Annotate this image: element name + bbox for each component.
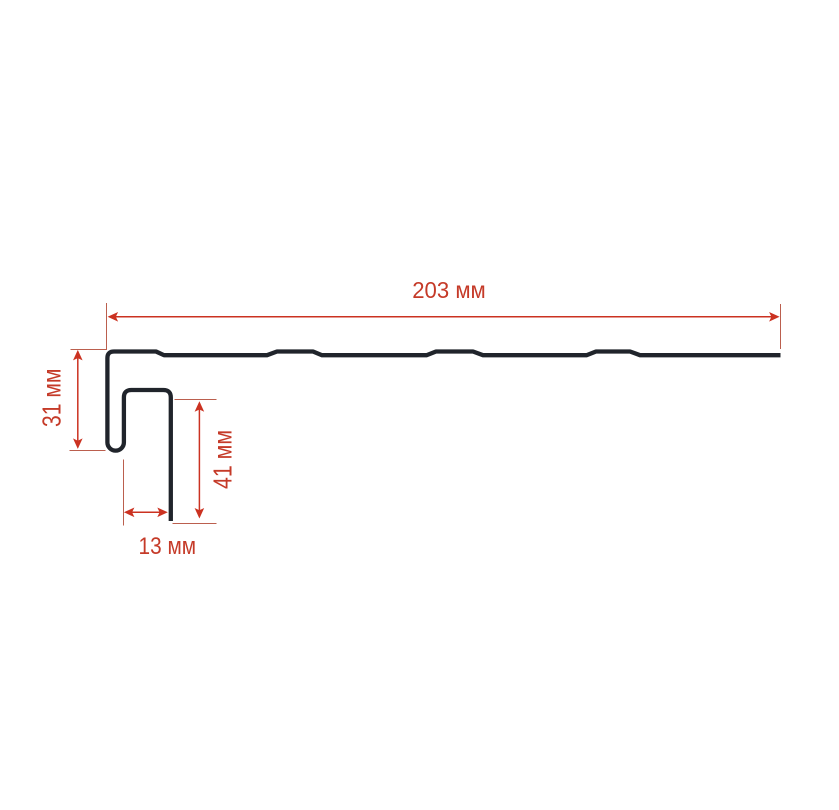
svg-text:203 мм: 203 мм bbox=[412, 277, 486, 303]
svg-text:41 мм: 41 мм bbox=[208, 430, 238, 489]
svg-text:13 мм: 13 мм bbox=[139, 533, 197, 560]
svg-text:31 мм: 31 мм bbox=[37, 369, 67, 428]
